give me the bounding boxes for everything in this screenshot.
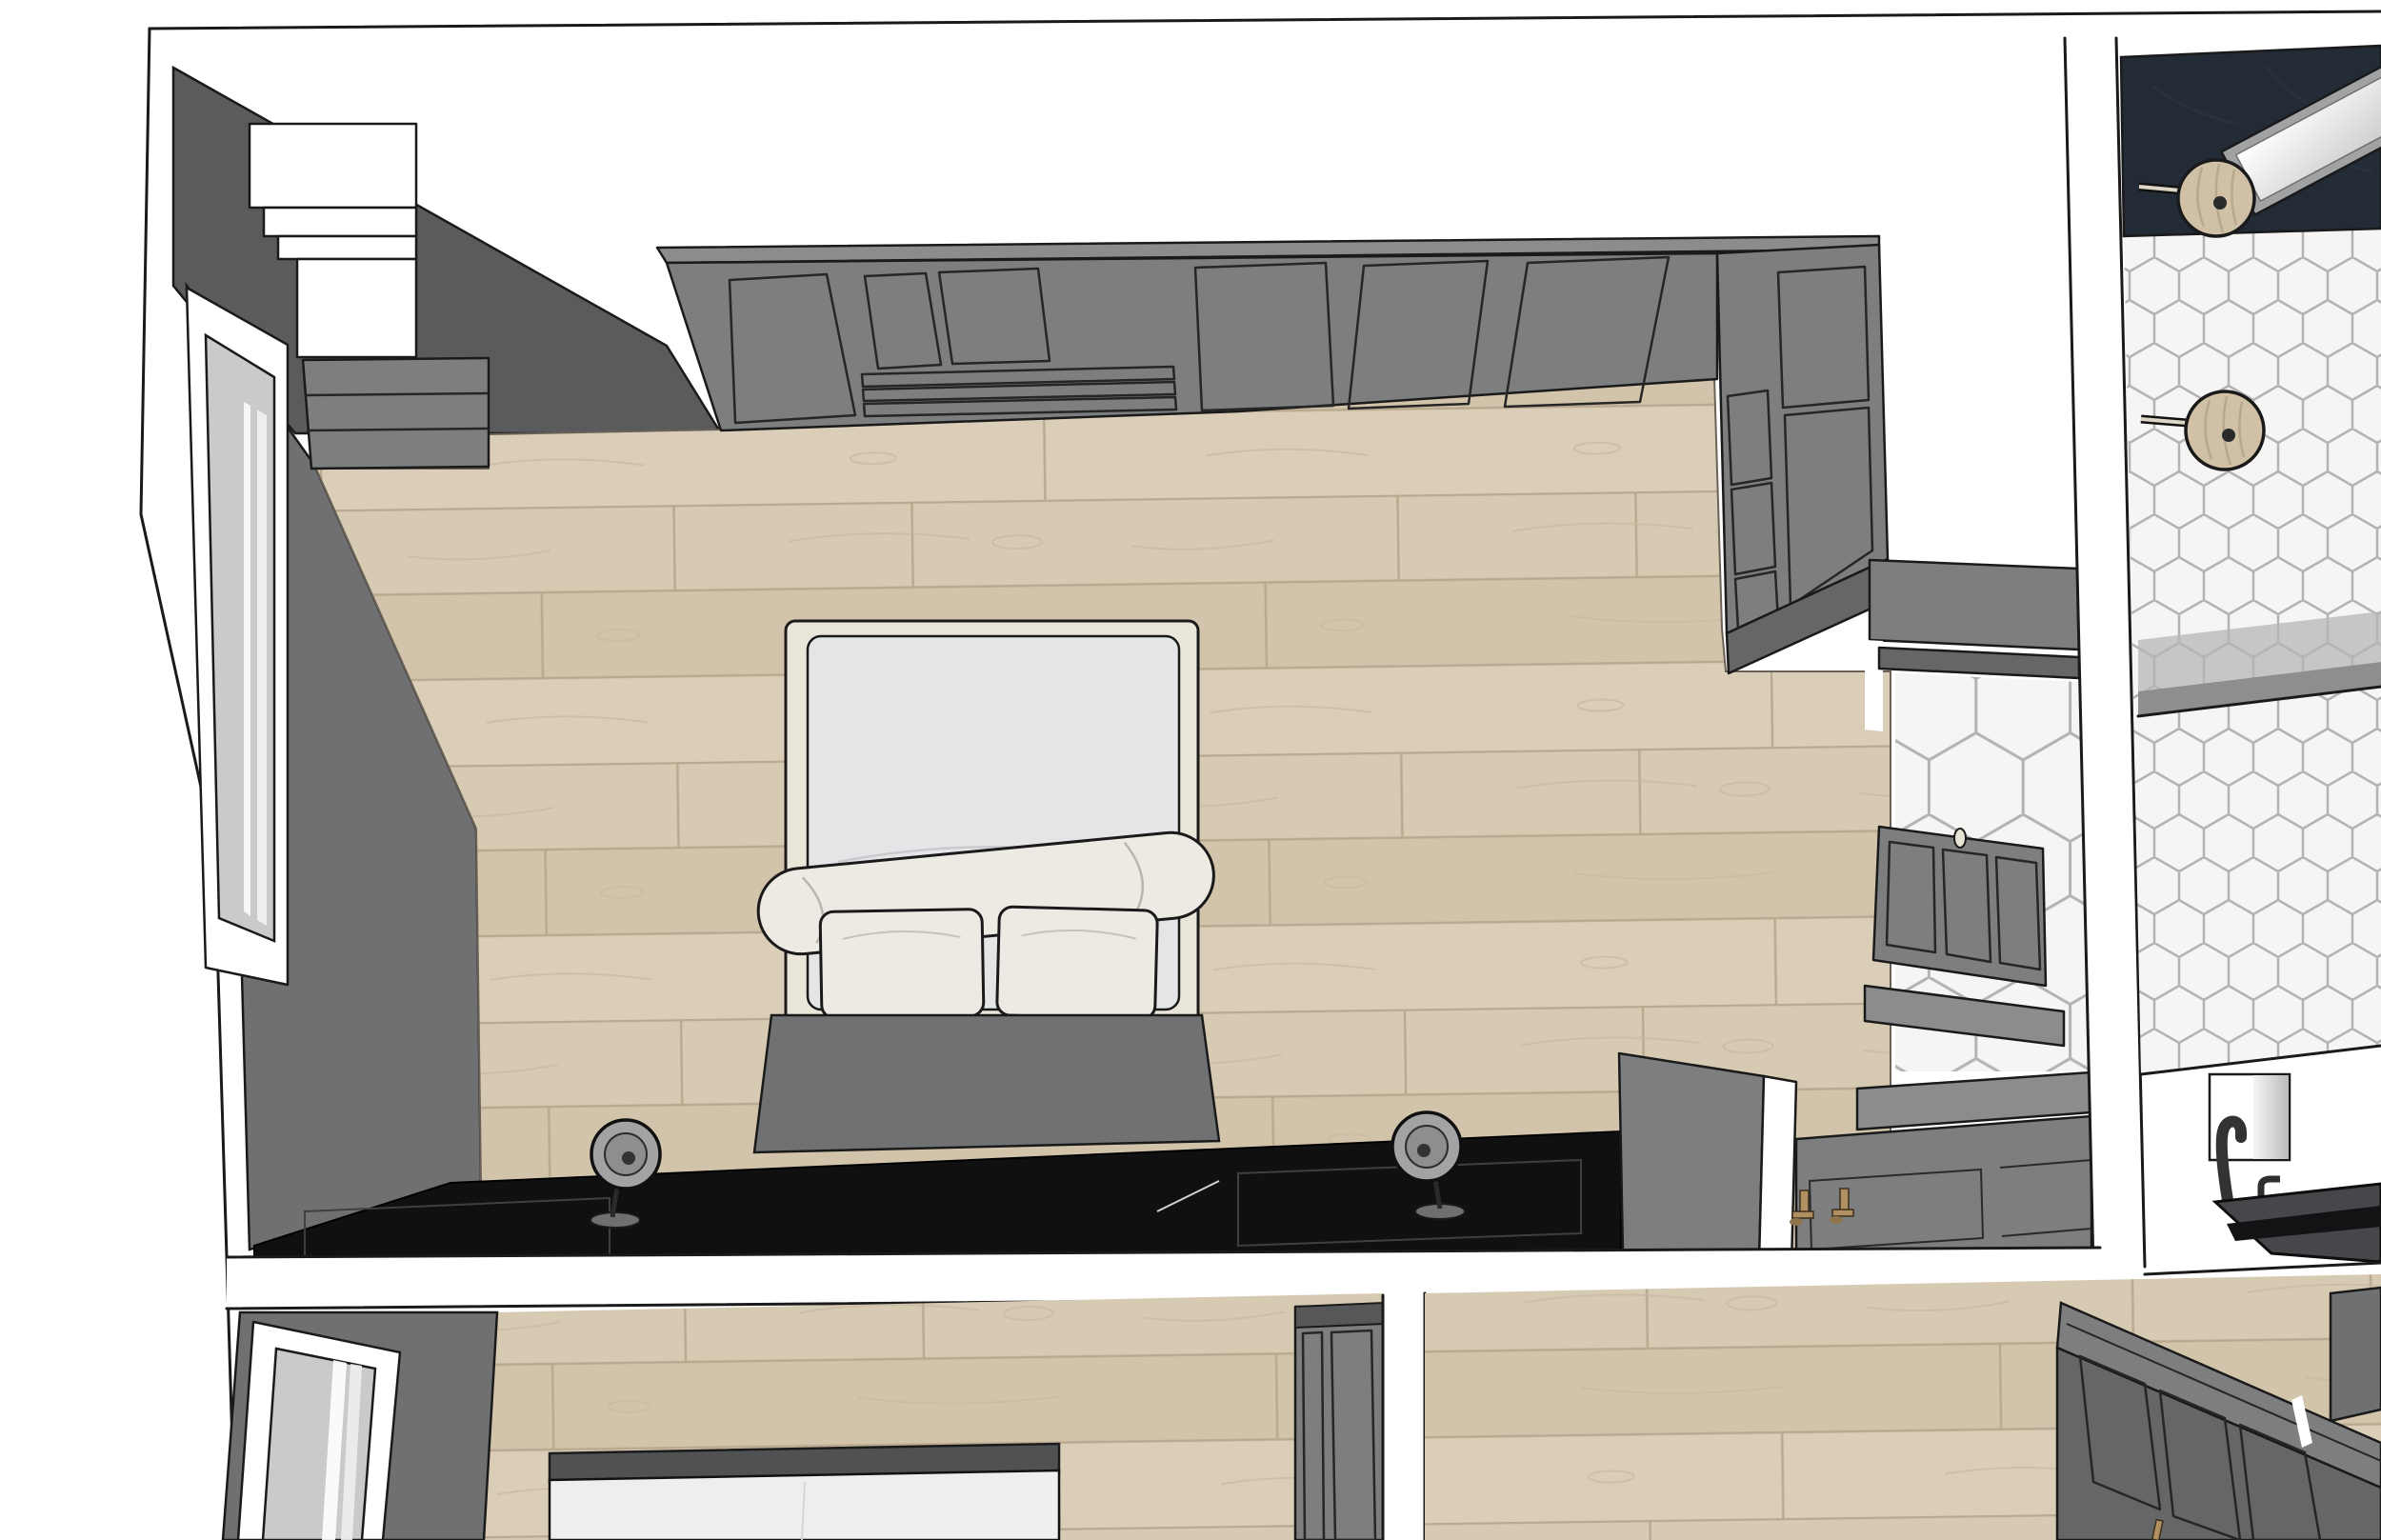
window-slider-strip (244, 402, 250, 916)
ensuite-vanity-cabinet[interactable] (1865, 827, 2064, 1046)
second-bedroom (223, 1293, 1425, 1540)
corner-drawer-chest[interactable] (303, 358, 489, 469)
main-bedroom-window[interactable] (187, 288, 288, 985)
double-bed[interactable] (754, 621, 1219, 1152)
second-bedroom-window[interactable] (238, 1322, 400, 1540)
dark-basin[interactable] (2215, 1184, 2381, 1262)
door-threshold (1879, 648, 2079, 678)
room-divider-wall (1383, 1293, 1425, 1540)
partition-wall (1619, 1053, 1796, 1267)
pillow-left (820, 910, 984, 1019)
second-bedroom-wardrobe-partial[interactable] (1295, 1303, 1383, 1540)
bathroom-strip (2121, 46, 2381, 1262)
right-wall-return (2331, 1288, 2381, 1421)
corner-wardrobe-column[interactable] (1717, 245, 1890, 673)
window-slider-strip (257, 410, 267, 926)
vanity-knob (1954, 829, 1966, 848)
headboard-platform (754, 1015, 1219, 1152)
bottom-right-room (1425, 1274, 2381, 1540)
floorplan-svg (0, 0, 2381, 1540)
pillow-right (997, 907, 1158, 1019)
floorplan-render-canvas[interactable] (0, 0, 2381, 1540)
second-bed-partial[interactable] (550, 1444, 1059, 1540)
